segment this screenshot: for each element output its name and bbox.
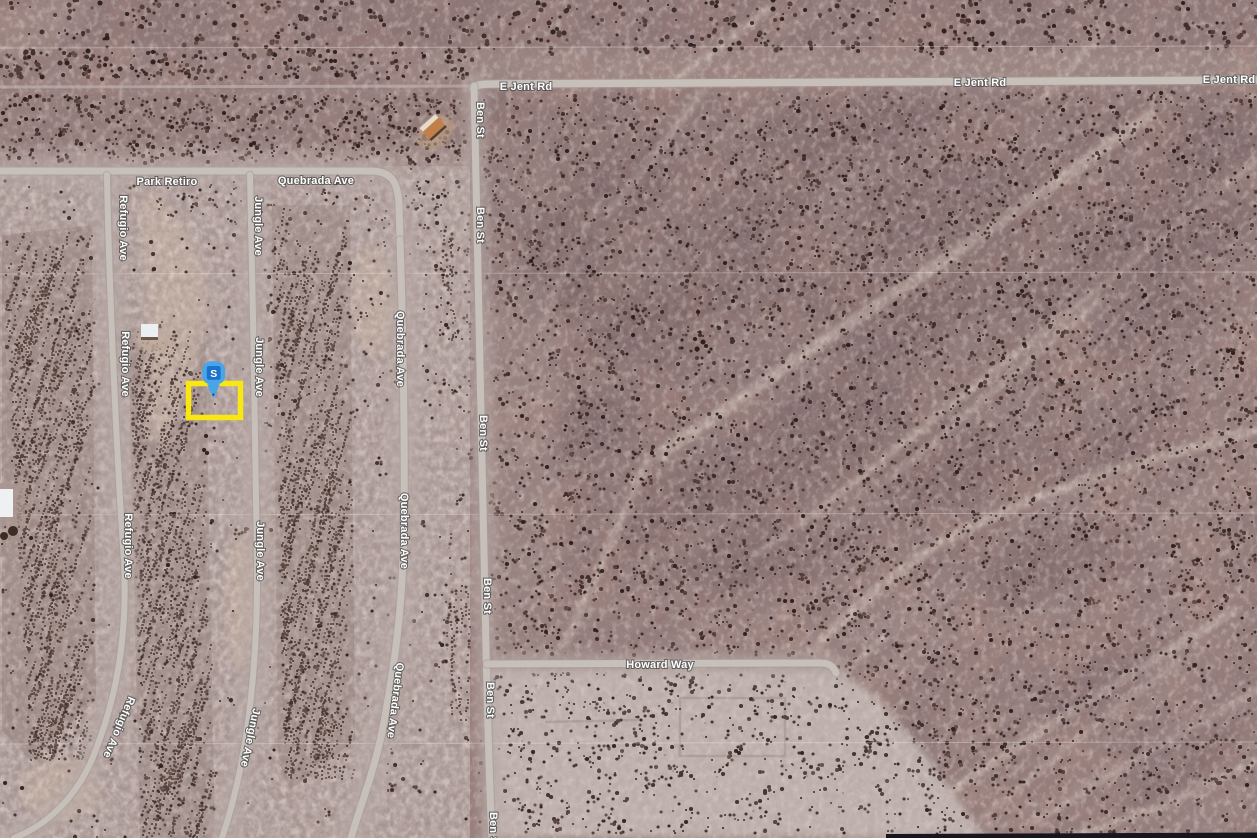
svg-text:S: S — [210, 368, 217, 380]
svg-text:Ben St: Ben St — [487, 812, 499, 838]
svg-text:E Jent Rd: E Jent Rd — [954, 77, 1007, 89]
svg-text:Ben St: Ben St — [474, 102, 486, 138]
svg-text:Quebrada Ave: Quebrada Ave — [394, 311, 406, 387]
svg-text:Howard Way: Howard Way — [626, 659, 694, 671]
svg-text:Quebrada Ave: Quebrada Ave — [398, 493, 410, 569]
svg-text:Jungle Ave: Jungle Ave — [254, 521, 266, 581]
svg-text:Ben St: Ben St — [474, 207, 486, 243]
svg-text:Jungle Ave: Jungle Ave — [253, 337, 265, 397]
svg-text:Park Retiro: Park Retiro — [137, 176, 198, 188]
svg-text:Refugio Ave: Refugio Ave — [117, 195, 129, 261]
svg-text:Jungle Ave: Jungle Ave — [252, 196, 264, 256]
svg-text:Ben St: Ben St — [477, 415, 489, 451]
svg-text:E Jent Rd: E Jent Rd — [1203, 74, 1256, 86]
svg-text:Ben St: Ben St — [484, 682, 496, 718]
svg-text:Quebrada Ave: Quebrada Ave — [278, 175, 354, 187]
svg-text:Refugio Ave: Refugio Ave — [122, 513, 134, 579]
svg-text:E Jent Rd: E Jent Rd — [500, 81, 553, 93]
svg-text:Ben St: Ben St — [481, 578, 493, 614]
svg-text:Refugio Ave: Refugio Ave — [119, 331, 131, 397]
